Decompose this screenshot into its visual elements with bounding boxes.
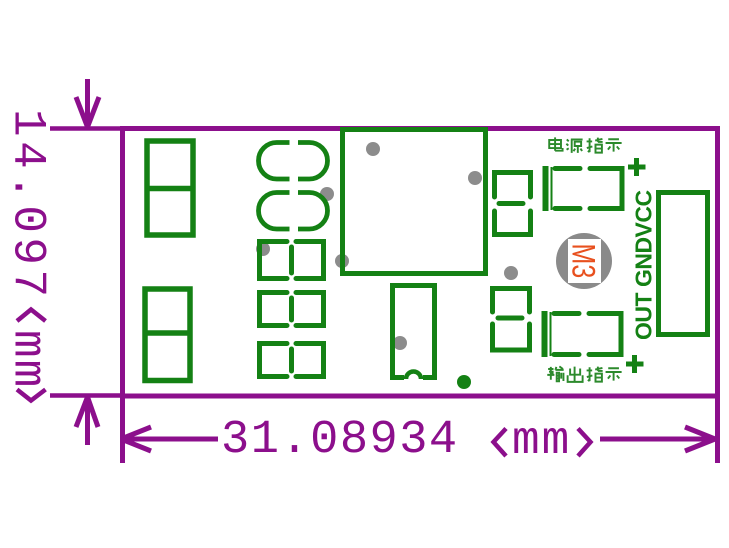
svg-text:31.08934: 31.08934 — [221, 414, 459, 467]
svg-text:mm: mm — [512, 415, 571, 467]
svg-text:OUT GNDVCC: OUT GNDVCC — [631, 190, 657, 340]
svg-text:mm: mm — [2, 330, 54, 389]
svg-text:14.097: 14.097 — [2, 109, 54, 302]
svg-text:M3: M3 — [565, 244, 601, 279]
